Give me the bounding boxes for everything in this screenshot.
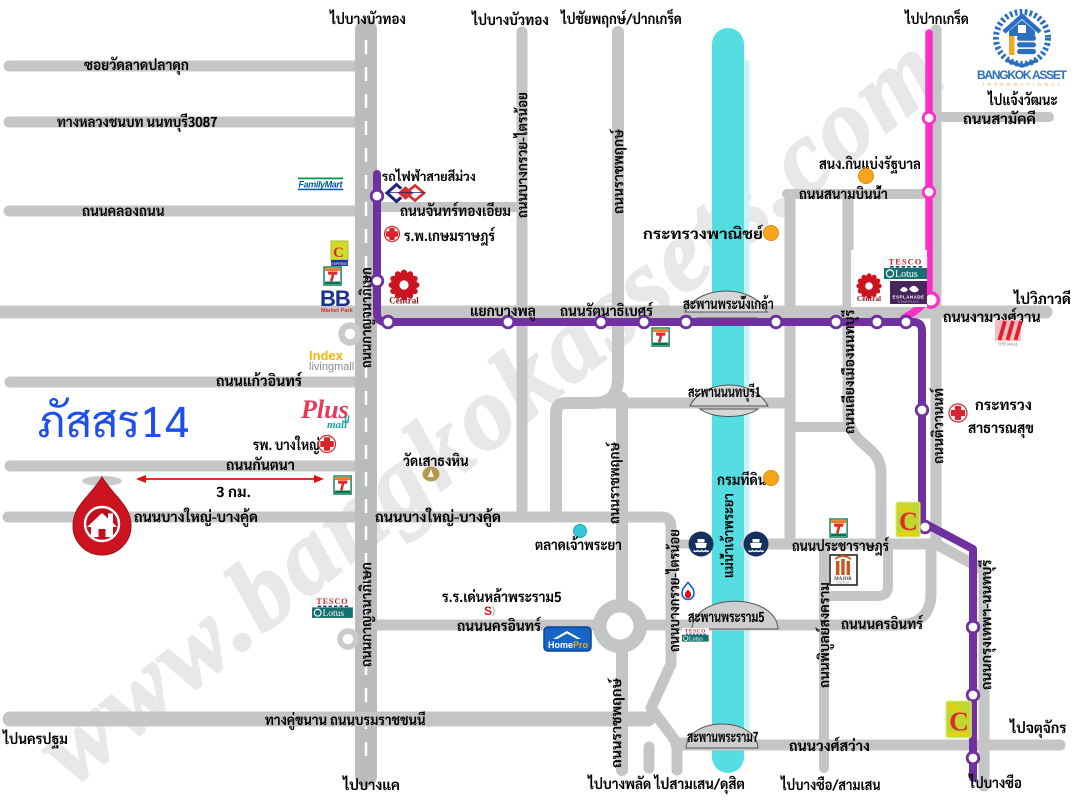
svg-text:CINEPLEX: CINEPLEX bbox=[898, 300, 920, 304]
svg-text:S: S bbox=[484, 604, 492, 618]
svg-text:C: C bbox=[899, 507, 918, 536]
svg-text:HomePro: HomePro bbox=[548, 640, 589, 650]
svg-text:Lotus: Lotus bbox=[689, 635, 704, 642]
svg-text:THE MALL: THE MALL bbox=[998, 342, 1019, 347]
svg-text:ESPLANADE: ESPLANADE bbox=[893, 295, 925, 300]
svg-text:TESCO: TESCO bbox=[685, 629, 706, 635]
svg-text:C: C bbox=[333, 245, 344, 261]
svg-text:Central: Central bbox=[857, 294, 881, 303]
svg-text:Central: Central bbox=[389, 296, 419, 306]
svg-text:): ) bbox=[492, 606, 495, 617]
svg-text:livingmall: livingmall bbox=[309, 361, 354, 373]
svg-text:BANGKOK ASSET: BANGKOK ASSET bbox=[977, 68, 1068, 82]
svg-text:ll: ll bbox=[344, 415, 350, 426]
svg-text:CINEPLEX: CINEPLEX bbox=[837, 581, 850, 585]
svg-text:FamilyMart: FamilyMart bbox=[299, 180, 344, 190]
svg-text:EXPRESS: EXPRESS bbox=[331, 262, 348, 266]
svg-text:TESCO: TESCO bbox=[889, 257, 923, 267]
svg-text:Lotus: Lotus bbox=[895, 269, 918, 280]
svg-text:Market Park: Market Park bbox=[321, 308, 354, 314]
svg-text:Lotus: Lotus bbox=[322, 609, 344, 619]
svg-text:C: C bbox=[949, 706, 969, 736]
svg-text:TESCO: TESCO bbox=[316, 597, 348, 606]
svg-text:I N T E R N A T I O N A L: I N T E R N A T I O N A L bbox=[983, 82, 1061, 87]
